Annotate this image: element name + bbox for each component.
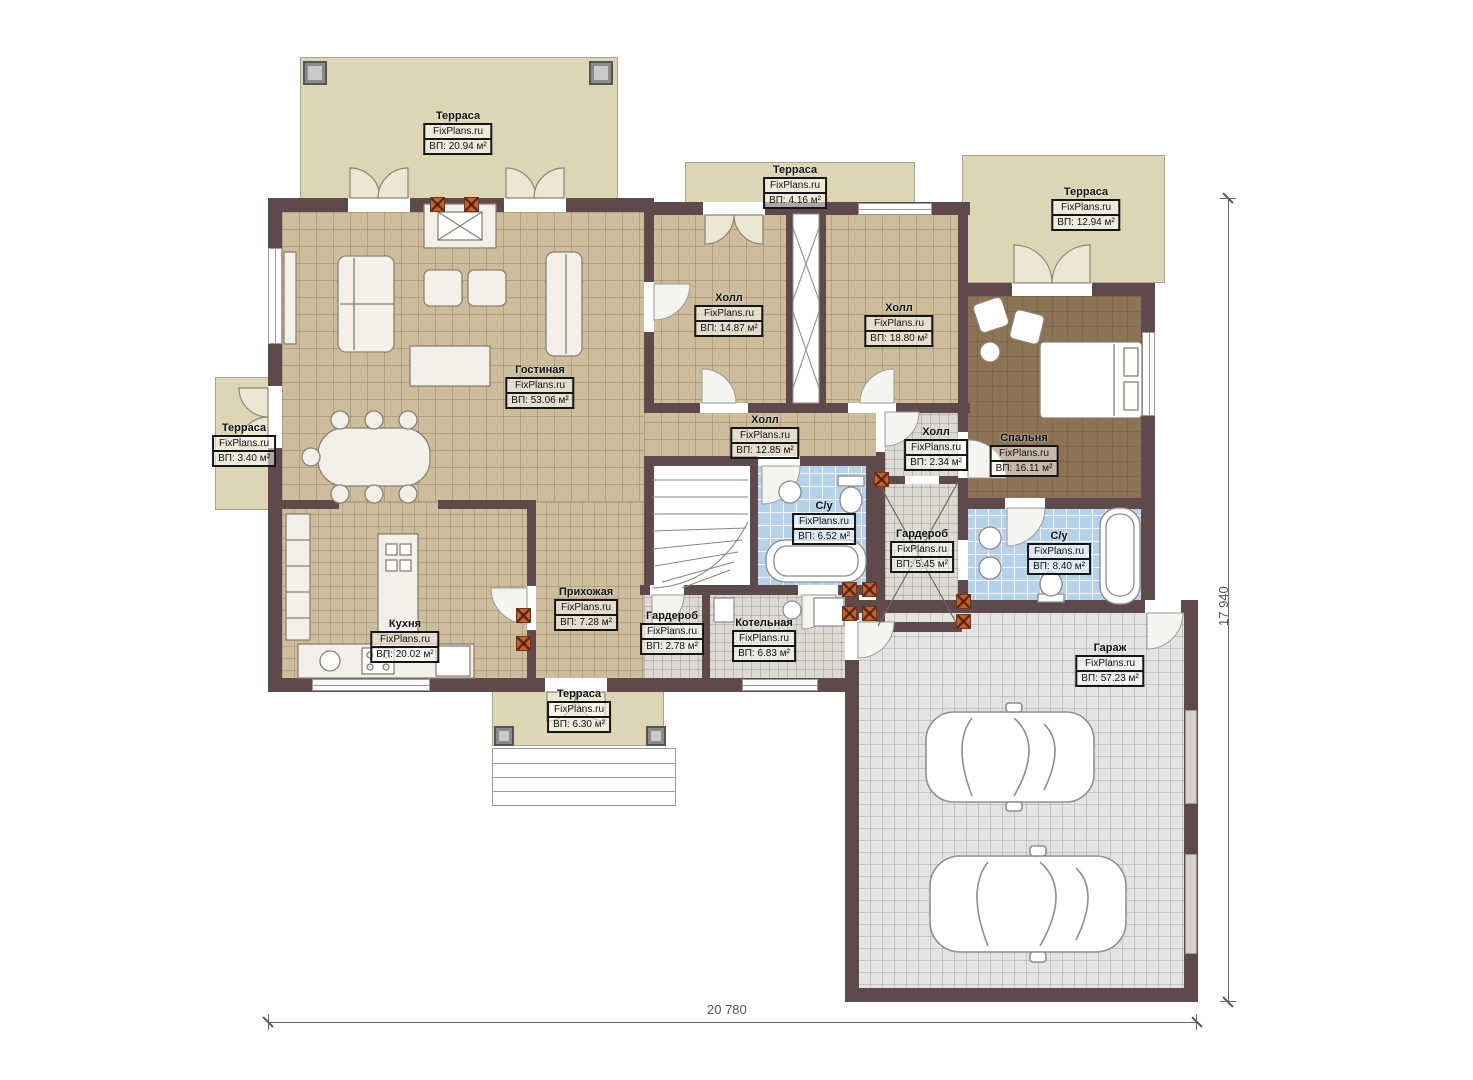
room-label-boiler-room: Котельная FixPlans.ru ВП: 6.83 м² [732,617,796,662]
brick-column [862,606,877,621]
room-label-bathroom-1: С/у FixPlans.ru ВП: 6.52 м² [792,500,856,545]
room-name: Котельная [732,617,796,630]
room-area: ВП: 6.52 м² [792,530,856,545]
room-area: ВП: 12.85 м² [730,444,799,459]
room-area: ВП: 14.87 м² [694,322,763,337]
room-name: Гардероб [890,528,954,541]
brick-column [842,606,857,621]
room-area: ВП: 4.16 м² [763,194,827,209]
room-name: Терраса [1051,186,1120,199]
window [312,679,430,691]
door-opening [958,540,968,580]
door-opening [1012,283,1092,296]
garage-door [1185,854,1197,954]
room-label-terrace-top-right: Терраса FixPlans.ru ВП: 12.94 м² [1051,186,1120,231]
exterior-steps [492,748,676,806]
terrace-pillar [303,61,327,85]
room-label-kitchen: Кухня FixPlans.ru ВП: 20.02 м² [370,618,439,663]
wall-segment [527,506,536,586]
room-label-wardrobe-1: Гардероб FixPlans.ru ВП: 5.45 м² [890,528,954,573]
wall-segment [958,498,1155,509]
window [1142,332,1155,416]
room-name: Прихожая [554,586,618,599]
wall-segment [644,403,970,413]
room-name: Холл [904,426,968,439]
wall-segment [876,622,962,632]
brand-watermark: FixPlans.ru [730,427,799,444]
room-area: ВП: 7.28 м² [554,616,618,631]
dimension-value-bottom: 20 780 [707,1002,747,1017]
dimension-value-right: 17 940 [1216,586,1231,626]
room-label-terrace-top-left: Терраса FixPlans.ru ВП: 20.94 м² [423,110,492,155]
door-opening [504,198,566,212]
room-area: ВП: 8.40 м² [1027,560,1091,575]
door-opening [876,410,885,452]
room-area: ВП: 57.23 м² [1075,672,1144,687]
door-opening [905,476,939,484]
room-name: Гараж [1075,642,1144,655]
room-label-wardrobe-2: Гардероб FixPlans.ru ВП: 2.78 м² [640,610,704,655]
room-name: Спальня [990,432,1059,445]
room-area: ВП: 53.06 м² [505,394,574,409]
room-name: Холл [694,292,763,305]
brand-watermark: FixPlans.ru [732,630,796,647]
brand-watermark: FixPlans.ru [904,439,968,456]
room-label-hall-top-left: Холл FixPlans.ru ВП: 14.87 м² [694,292,763,337]
room-name: Терраса [547,688,611,701]
room-area: ВП: 2.34 м² [904,456,968,471]
room-area: ВП: 18.80 м² [864,332,933,347]
room-name: Терраса [212,422,276,435]
brand-watermark: FixPlans.ru [554,599,618,616]
brick-column [842,582,857,597]
room-area: ВП: 16.11 м² [990,462,1059,477]
room-name: Холл [730,414,799,427]
brand-watermark: FixPlans.ru [505,377,574,394]
wall-segment [281,500,339,509]
dimension-line-bottom [268,1022,1197,1023]
garage-door [1185,710,1197,804]
room-label-hall-top-right: Холл FixPlans.ru ВП: 18.80 м² [864,302,933,347]
room-area: ВП: 6.30 м² [547,718,611,733]
door-opening [798,585,838,595]
brand-watermark: FixPlans.ru [792,513,856,530]
room-area: ВП: 5.45 м² [890,558,954,573]
window [858,203,932,215]
brick-column [956,614,971,629]
brand-watermark: FixPlans.ru [763,177,827,194]
room-name: С/у [1027,530,1091,543]
room-name: Холл [864,302,933,315]
room-label-entrance-hall: Прихожая FixPlans.ru ВП: 7.28 м² [554,586,618,631]
wall-segment [845,988,1198,1002]
brand-watermark: FixPlans.ru [370,631,439,648]
brick-column [956,594,971,609]
room-label-hall-small: Холл FixPlans.ru ВП: 2.34 м² [904,426,968,471]
brand-watermark: FixPlans.ru [1075,655,1144,672]
brand-watermark: FixPlans.ru [864,315,933,332]
brand-watermark: FixPlans.ru [212,435,276,452]
wall-segment [819,212,826,405]
dimension-ext [1196,1014,1197,1030]
brick-column [430,197,445,212]
room-name: Терраса [423,110,492,123]
door-opening [703,202,765,215]
room-name: С/у [792,500,856,513]
room-area: ВП: 20.02 м² [370,648,439,663]
dimension-ext [1220,198,1236,199]
room-label-bathroom-2: С/у FixPlans.ru ВП: 8.40 м² [1027,530,1091,575]
brick-column [516,636,531,651]
room-label-bedroom: Спальня FixPlans.ru ВП: 16.11 м² [990,432,1059,477]
brick-column [862,582,877,597]
brand-watermark: FixPlans.ru [640,623,704,640]
room-label-terrace-bottom: Терраса FixPlans.ru ВП: 6.30 м² [547,688,611,733]
room-area: ВП: 6.83 м² [732,647,796,662]
wall-segment [644,460,654,592]
brand-watermark: FixPlans.ru [890,541,954,558]
room-label-terrace-left: Терраса FixPlans.ru ВП: 3.40 м² [212,422,276,467]
brick-column [464,197,479,212]
window [268,248,282,344]
dimension-ext [268,1014,269,1030]
wall-segment [268,198,654,212]
staircase-floor [644,460,752,590]
brand-watermark: FixPlans.ru [1027,543,1091,560]
brand-watermark: FixPlans.ru [547,701,611,718]
door-opening [1145,600,1181,613]
brand-watermark: FixPlans.ru [694,305,763,322]
door-opening [700,403,748,413]
dimension-ext [1220,1001,1236,1002]
room-area: ВП: 3.40 м² [212,452,276,467]
living-room-floor [282,212,644,504]
door-opening [348,198,410,212]
door-opening [845,620,859,660]
terrace-pillar [589,61,613,85]
room-label-hall-middle: Холл FixPlans.ru ВП: 12.85 м² [730,414,799,459]
room-area: ВП: 12.94 м² [1051,216,1120,231]
wall-segment [438,500,536,509]
room-name: Терраса [763,164,827,177]
brick-column [874,472,889,487]
floor-plan: Терраса FixPlans.ru ВП: 20.94 м² Терраса… [0,0,1473,1080]
brick-column [516,608,531,623]
room-area: ВП: 2.78 м² [640,640,704,655]
room-label-terrace-top-middle: Терраса FixPlans.ru ВП: 4.16 м² [763,164,827,209]
brand-watermark: FixPlans.ru [990,445,1059,462]
terrace-pillar [494,726,514,746]
window [742,679,818,691]
door-opening [650,585,684,595]
room-label-garage: Гараж FixPlans.ru ВП: 57.23 м² [1075,642,1144,687]
door-opening [848,403,896,413]
brand-watermark: FixPlans.ru [423,123,492,140]
room-name: Гардероб [640,610,704,623]
room-label-living-room: Гостиная FixPlans.ru ВП: 53.06 м² [505,364,574,409]
room-area: ВП: 20.94 м² [423,140,492,155]
wall-segment [750,460,758,590]
door-opening [644,282,654,332]
brand-watermark: FixPlans.ru [1051,199,1120,216]
room-name: Кухня [370,618,439,631]
door-opening [1005,498,1045,509]
wall-segment [786,212,793,405]
room-name: Гостиная [505,364,574,377]
terrace-pillar [646,726,666,746]
